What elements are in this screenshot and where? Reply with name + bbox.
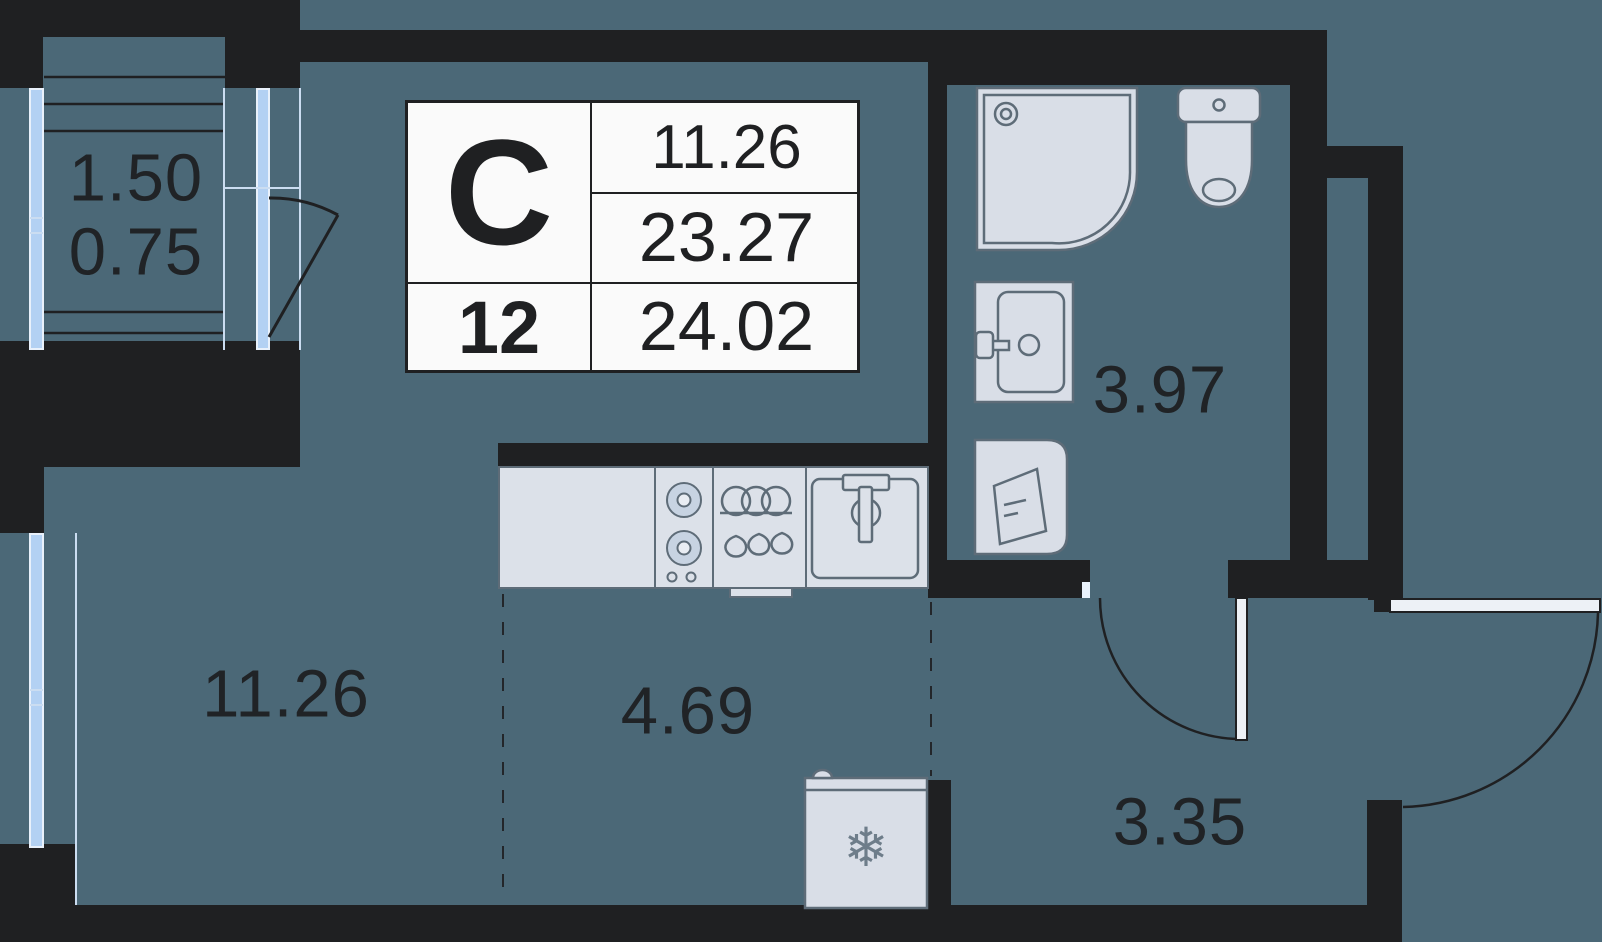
oven-handle	[730, 588, 792, 597]
bathroom-tap-icon	[976, 332, 993, 358]
balcony-door-arc	[269, 198, 338, 215]
fridge-handle-icon	[813, 770, 832, 778]
shower-tray	[977, 88, 1137, 250]
floor-plan: ❄ С 12 11.26 23.27 24.02 1.50 0.75 11.26…	[0, 0, 1602, 942]
unit-room-area: 11.26	[592, 103, 861, 192]
bathroom-door-jamb	[1082, 582, 1090, 598]
living-room-area-label: 11.26	[202, 656, 370, 733]
unit-type-letter: С	[408, 103, 590, 282]
unit-floor-number: 12	[408, 282, 590, 373]
toilet	[1178, 88, 1260, 207]
balcony-area-label: 1.50	[69, 140, 203, 217]
washing-machine	[975, 440, 1067, 554]
balcony-door-leaf	[269, 215, 338, 337]
toilet-bowl	[1186, 122, 1252, 207]
bathroom-area-label: 3.97	[1093, 352, 1227, 429]
fridge: ❄	[805, 770, 927, 908]
bathroom-door-leaf	[1236, 598, 1247, 740]
unit-total-area: 24.02	[592, 282, 861, 370]
entrance-door	[1390, 599, 1600, 807]
entrance-door-leaf	[1390, 599, 1600, 612]
kitchen-tap-icon	[859, 487, 872, 542]
hallway-area-label: 3.35	[1113, 784, 1247, 861]
entrance-door-arc	[1403, 613, 1598, 807]
kitchen-sink	[812, 475, 918, 578]
bathroom-sink	[975, 282, 1073, 402]
bathroom-door	[1082, 582, 1247, 740]
balcony-reduced-area-label: 0.75	[69, 214, 203, 291]
snowflake-icon: ❄	[843, 816, 888, 879]
kitchen-area-label: 4.69	[621, 673, 755, 750]
stove-knob-icon	[687, 573, 696, 582]
unit-info-card: С 12 11.26 23.27 24.02	[405, 100, 860, 373]
stove-knob-icon	[668, 573, 677, 582]
toilet-tank	[1178, 88, 1260, 122]
unit-area-without-balcony: 23.27	[592, 192, 861, 282]
bathroom-door-arc	[1100, 598, 1241, 739]
balcony-door-swing	[269, 198, 338, 337]
